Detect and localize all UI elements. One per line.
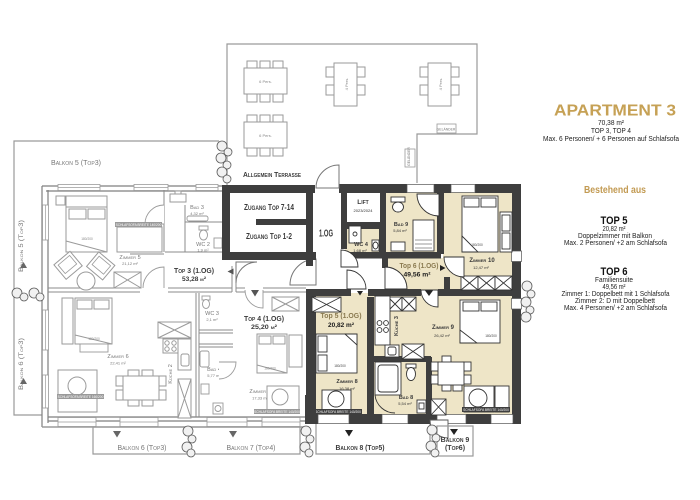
svg-text:20,82 m²: 20,82 m² xyxy=(328,322,355,329)
svg-text:Balkon 5 (Top3): Balkon 5 (Top3) xyxy=(51,160,101,167)
svg-text:Balkon 9: Balkon 9 xyxy=(441,437,470,444)
svg-text:25,20 m²: 25,20 m² xyxy=(251,324,277,331)
svg-text:SCHLAFSOFA BREITE 140/200: SCHLAFSOFA BREITE 140/200 xyxy=(254,410,300,414)
svg-text:Doppelzimmer mit Balkon: Doppelzimmer mit Balkon xyxy=(578,233,652,240)
svg-text:49,56 m²: 49,56 m² xyxy=(404,272,432,279)
svg-text:5,54 m²: 5,54 m² xyxy=(398,401,412,406)
svg-text:6 Pers.: 6 Pers. xyxy=(259,79,272,84)
svg-text:SCHLAFSOFA BREITE 140/200: SCHLAFSOFA BREITE 140/200 xyxy=(315,410,361,414)
svg-text:21,12 m²: 21,12 m² xyxy=(122,261,138,266)
svg-text:1,9 m²: 1,9 m² xyxy=(197,248,209,253)
svg-text:180/200: 180/200 xyxy=(334,364,346,368)
svg-text:4,32 m²: 4,32 m² xyxy=(190,211,204,216)
svg-text:Lift: Lift xyxy=(357,199,368,206)
svg-text:Balkon 6 (Top3): Balkon 6 (Top3) xyxy=(118,445,167,452)
svg-text:1,68 m²: 1,68 m² xyxy=(353,248,367,253)
svg-text:Max. 2 Personen/ +2 am Schlafs: Max. 2 Personen/ +2 am Schlafsofa xyxy=(564,240,667,247)
svg-text:TOP 3, TOP 4: TOP 3, TOP 4 xyxy=(591,128,631,135)
svg-text:180/200: 180/200 xyxy=(471,243,483,247)
svg-text:Max. 4 Personen/ +2 am Schlafs: Max. 4 Personen/ +2 am Schlafsofa xyxy=(564,305,667,312)
svg-text:22,41 m²: 22,41 m² xyxy=(110,361,126,366)
svg-text:Zimmer 1: Doppelbett mit 1 Sch: Zimmer 1: Doppelbett mit 1 Schlafsofa xyxy=(562,291,670,298)
svg-text:Balkon 7 (Top4): Balkon 7 (Top4) xyxy=(227,445,276,452)
svg-text:Bestehend aus: Bestehend aus xyxy=(584,185,646,196)
svg-text:26,42 m²: 26,42 m² xyxy=(434,333,450,338)
svg-text:1.OG: 1.OG xyxy=(319,229,333,240)
svg-text:Zimmer 8: Zimmer 8 xyxy=(336,379,357,385)
svg-text:12,47 m²: 12,47 m² xyxy=(473,265,489,270)
svg-text:(Top6): (Top6) xyxy=(445,445,465,452)
svg-text:53,28 m²: 53,28 m² xyxy=(182,276,206,283)
svg-text:6 Pers.: 6 Pers. xyxy=(259,133,272,138)
svg-text:Zimmer 10: Zimmer 10 xyxy=(469,258,495,264)
svg-text:17,33 m²: 17,33 m² xyxy=(252,396,268,401)
svg-text:Balkon 8 (Top5): Balkon 8 (Top5) xyxy=(336,445,385,452)
svg-text:Max. 6 Personen/ + 6 Personen: Max. 6 Personen/ + 6 Personen auf Schlaf… xyxy=(543,136,679,143)
svg-text:Top 4 (1.OG): Top 4 (1.OG) xyxy=(244,316,284,323)
svg-text:GELÄNDER: GELÄNDER xyxy=(407,147,411,166)
svg-text:Zimmer 9: Zimmer 9 xyxy=(432,325,455,331)
svg-text:49,56 m²: 49,56 m² xyxy=(603,284,627,291)
svg-text:Zugang Top 1-2: Zugang Top 1-2 xyxy=(246,232,292,241)
svg-text:Top 3 (1.OG): Top 3 (1.OG) xyxy=(174,268,214,275)
svg-text:GELÄNDER: GELÄNDER xyxy=(437,128,456,132)
svg-text:2,1 m²: 2,1 m² xyxy=(206,317,218,322)
svg-text:SCHLAFSOFA BREITE 160/200: SCHLAFSOFA BREITE 160/200 xyxy=(58,395,104,399)
svg-text:5,84 m²: 5,84 m² xyxy=(393,228,407,233)
svg-text:Top 6 (1.OG): Top 6 (1.OG) xyxy=(400,263,439,270)
svg-text:Familiensuite: Familiensuite xyxy=(595,277,633,284)
svg-text:70,38 m²: 70,38 m² xyxy=(598,120,625,127)
svg-text:Küche 2: Küche 2 xyxy=(168,364,174,384)
svg-text:2023/2024: 2023/2024 xyxy=(354,208,374,213)
svg-text:180/200: 180/200 xyxy=(264,367,276,371)
svg-text:4 Pers.: 4 Pers. xyxy=(344,78,349,91)
svg-text:Top 5 (1.OG): Top 5 (1.OG) xyxy=(321,313,362,320)
svg-text:180/200: 180/200 xyxy=(81,237,93,241)
svg-text:180/200: 180/200 xyxy=(88,337,100,341)
svg-text:20,82 m²: 20,82 m² xyxy=(603,226,627,233)
svg-text:180/200: 180/200 xyxy=(485,334,497,338)
svg-text:Zimmer 6: Zimmer 6 xyxy=(107,354,128,360)
svg-text:Küche 3: Küche 3 xyxy=(394,316,400,336)
svg-text:SCHLAFSOFA BREITE 140/200: SCHLAFSOFA BREITE 140/200 xyxy=(116,223,162,227)
svg-text:4 Pers.: 4 Pers. xyxy=(438,78,443,91)
svg-text:APARTMENT 3: APARTMENT 3 xyxy=(554,103,676,120)
svg-text:Zimmer 2: D mit Doppelbett: Zimmer 2: D mit Doppelbett xyxy=(575,298,655,305)
svg-text:Zugang Top 7-14: Zugang Top 7-14 xyxy=(244,203,294,212)
svg-text:Allgemein Terrasse: Allgemein Terrasse xyxy=(243,170,302,179)
svg-text:SCHLAFSOFA BREITE 140/200: SCHLAFSOFA BREITE 140/200 xyxy=(463,408,509,412)
